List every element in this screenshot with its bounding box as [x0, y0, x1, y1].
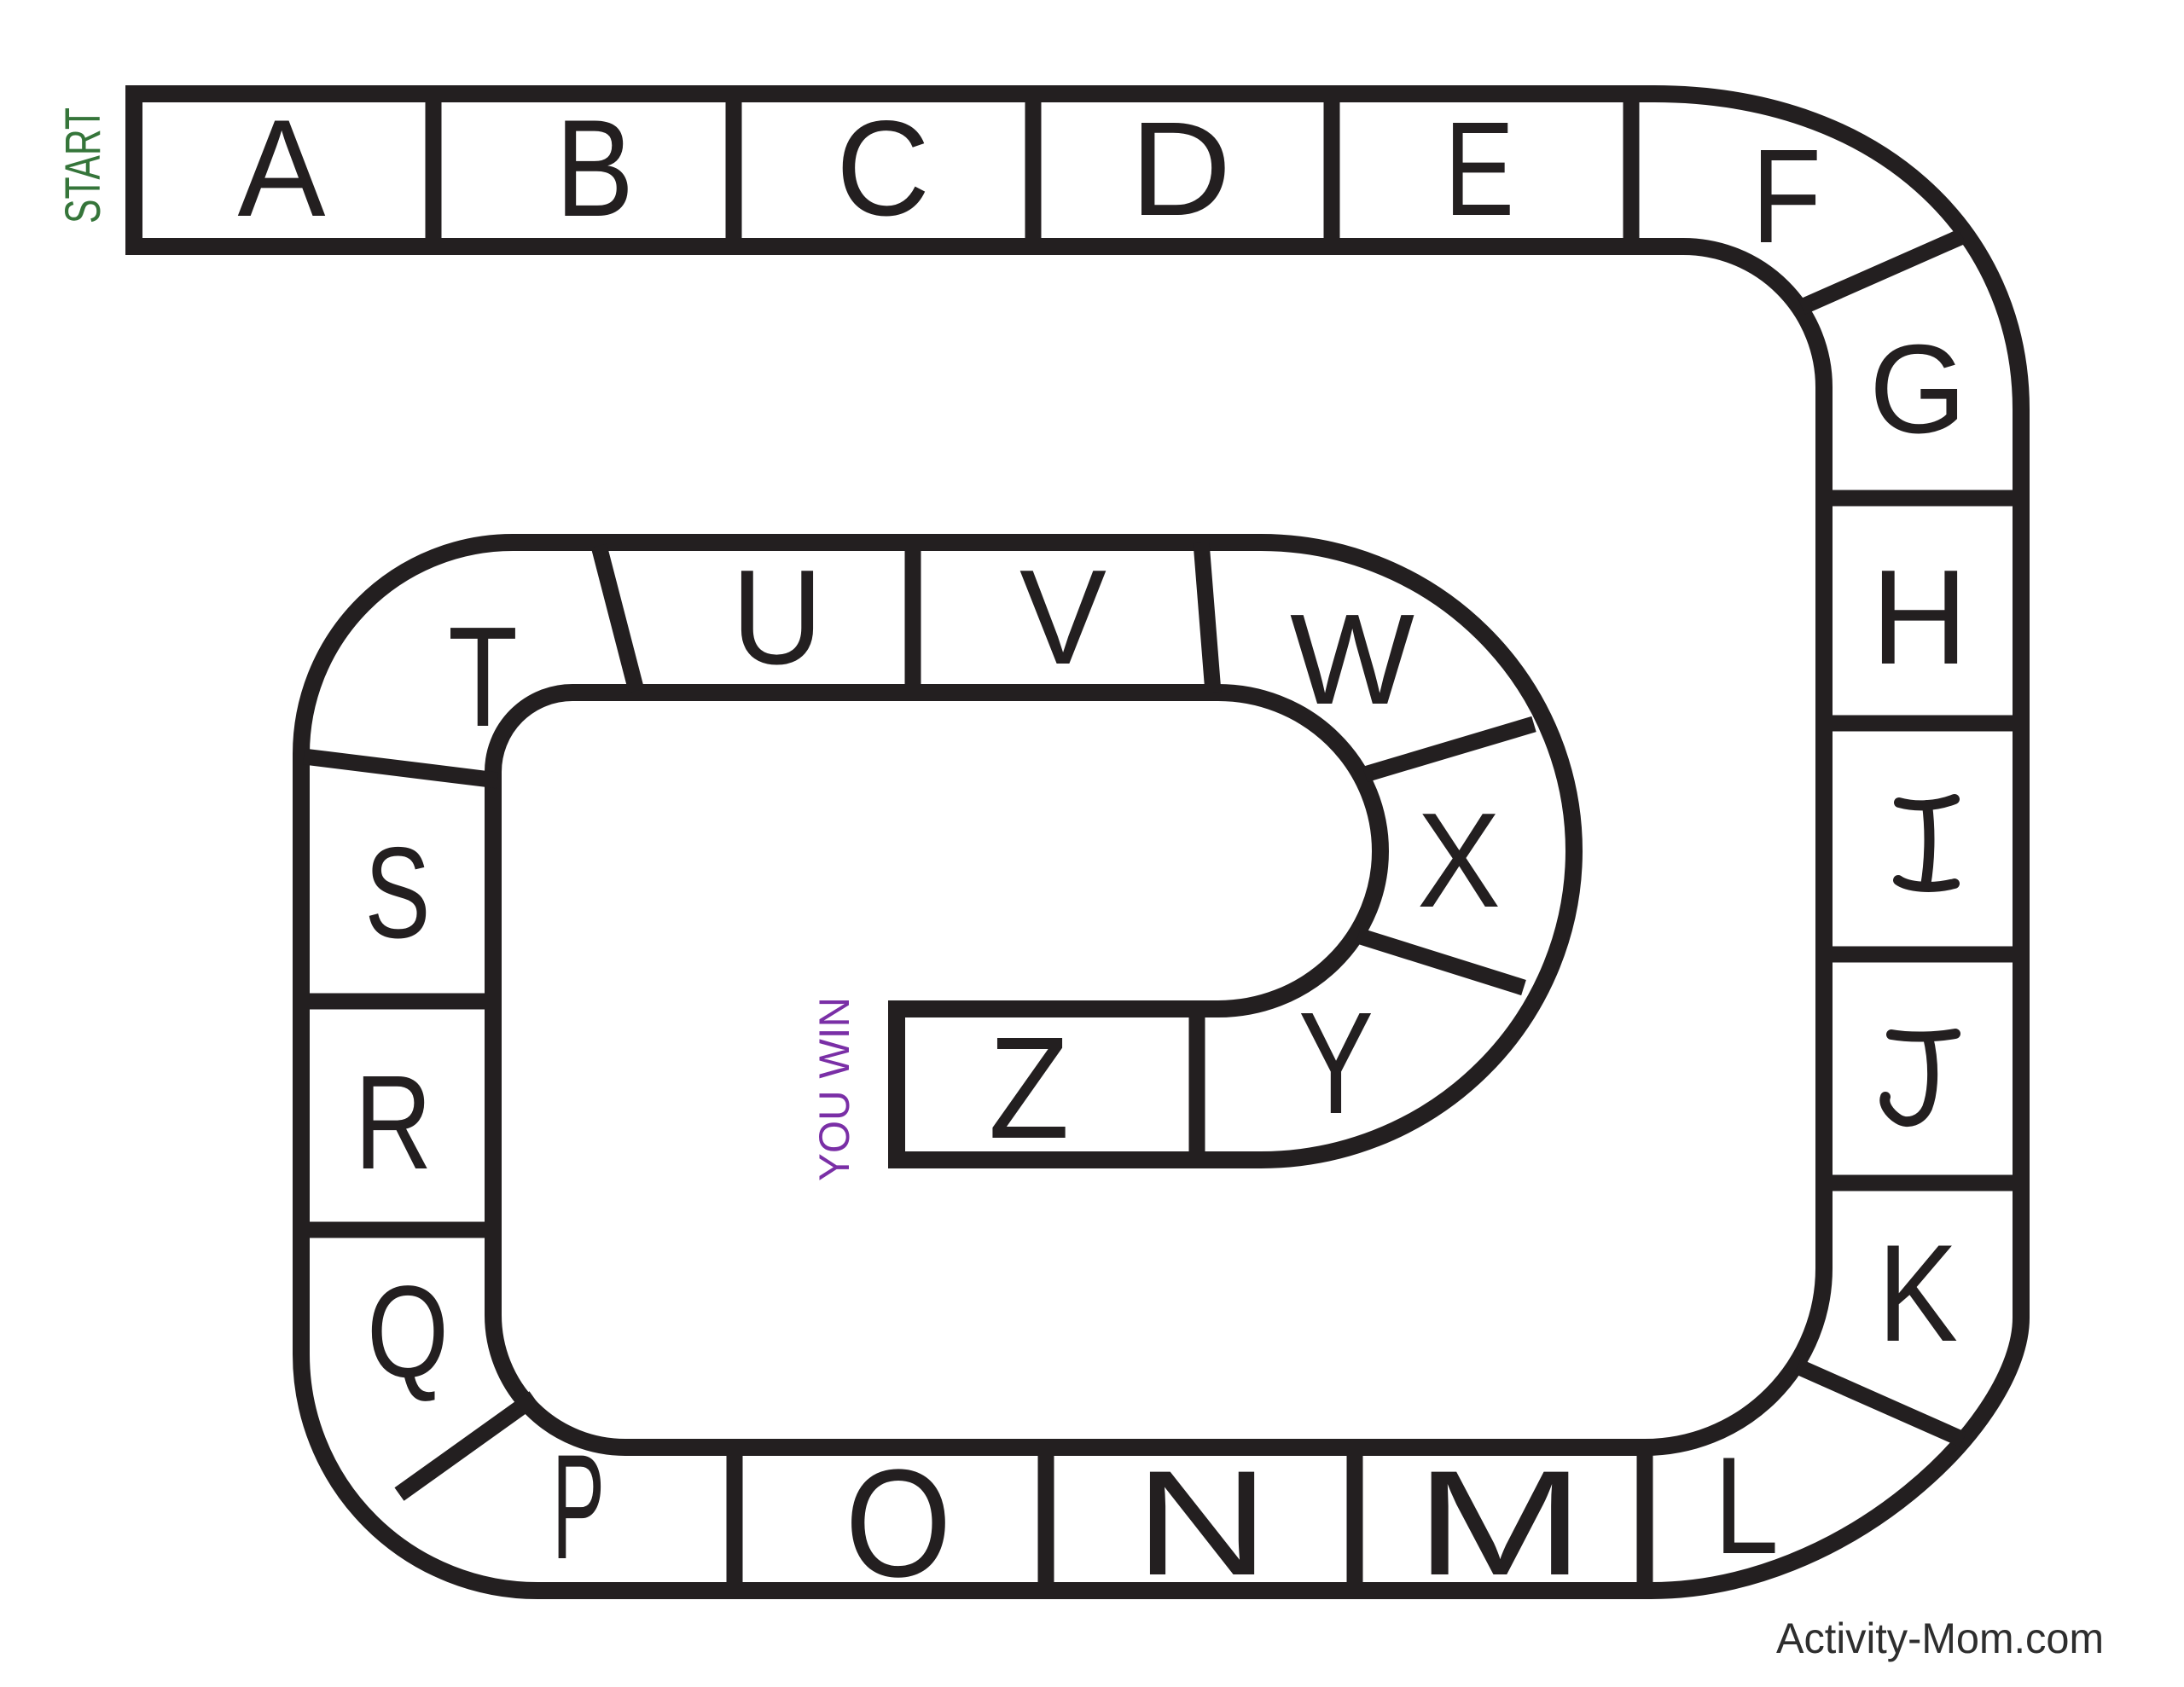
svg-text:D: D [1130, 95, 1232, 244]
svg-text:M: M [1414, 1441, 1585, 1607]
svg-text:T: T [448, 598, 518, 757]
svg-text:Z: Z [989, 1007, 1070, 1169]
svg-text:K: K [1878, 1216, 1958, 1371]
svg-text:R: R [355, 1048, 433, 1197]
svg-text:X: X [1417, 786, 1501, 936]
svg-text:V: V [1019, 542, 1107, 693]
svg-text:E: E [1444, 95, 1514, 244]
svg-text:Activity-Mom.com: Activity-Mom.com [1776, 1615, 2104, 1662]
svg-text:W: W [1290, 587, 1414, 731]
svg-text:START: START [55, 107, 111, 223]
svg-text:H: H [1871, 542, 1968, 693]
svg-text:C: C [836, 92, 930, 244]
svg-text:U: U [732, 542, 823, 693]
svg-text:YOU WIN: YOU WIN [810, 997, 858, 1181]
svg-text:O: O [845, 1438, 952, 1609]
svg-text:B: B [555, 91, 634, 246]
svg-text:N: N [1135, 1441, 1269, 1607]
svg-text:A: A [238, 91, 326, 246]
svg-text:S: S [365, 820, 431, 965]
svg-text:Y: Y [1298, 983, 1374, 1145]
svg-text:G: G [1869, 319, 1966, 460]
svg-text:L: L [1714, 1429, 1779, 1583]
svg-text:Q: Q [367, 1259, 449, 1405]
svg-text:P: P [552, 1424, 605, 1591]
svg-text:F: F [1751, 122, 1821, 271]
